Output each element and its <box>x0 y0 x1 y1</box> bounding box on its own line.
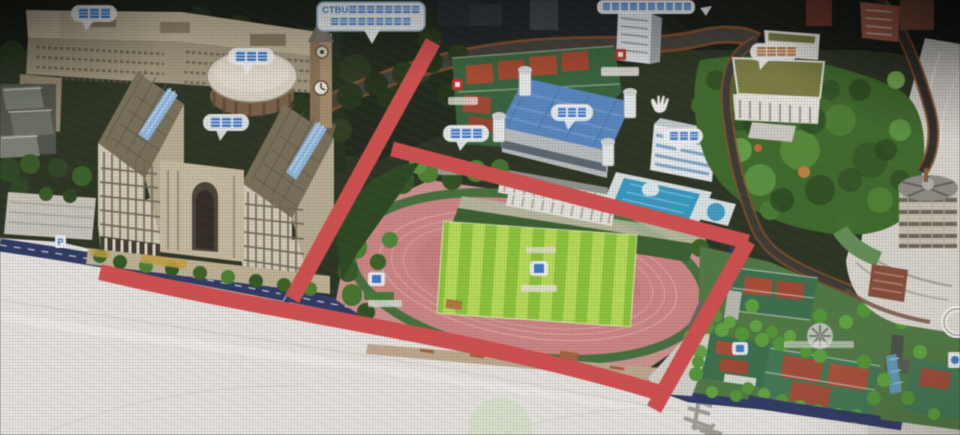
svg-text:P: P <box>58 237 64 247</box>
svg-text:CTBU: CTBU <box>322 5 349 16</box>
